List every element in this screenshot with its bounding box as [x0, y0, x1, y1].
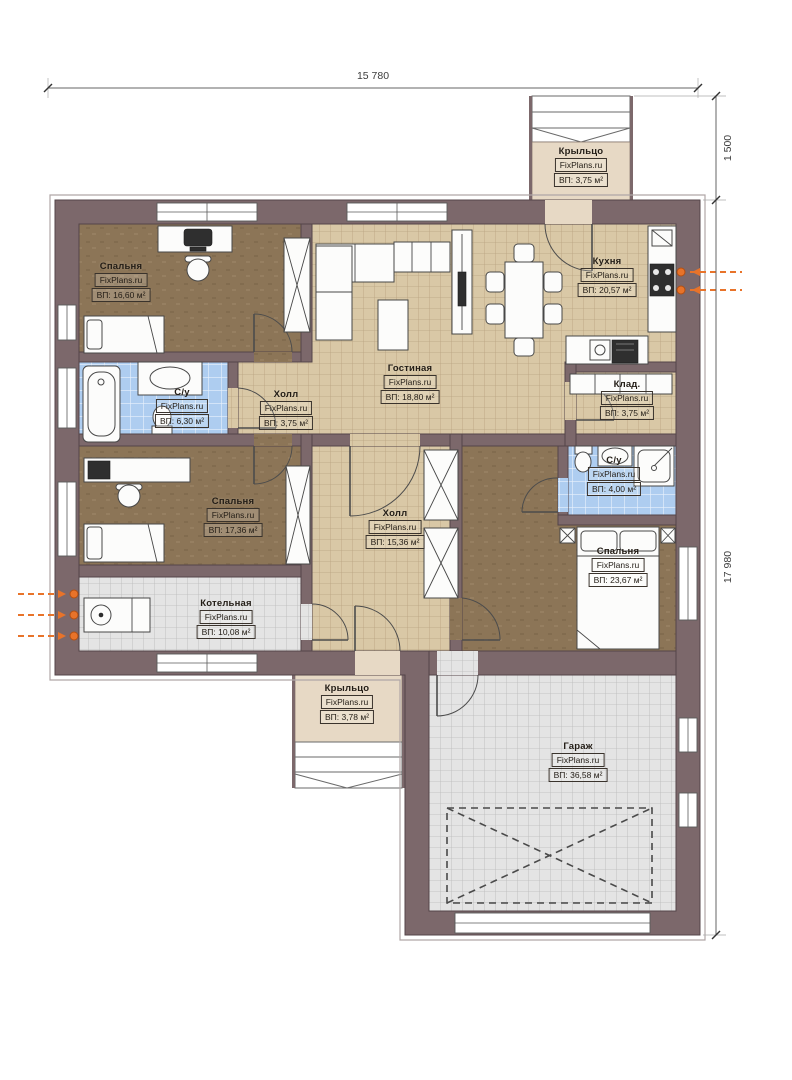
kitchen-counter: [648, 226, 676, 332]
room-name: Кухня: [593, 256, 622, 267]
window: [679, 718, 697, 752]
room-name: С/у: [174, 387, 189, 398]
room-area: ВП: 23,67 м²: [589, 573, 648, 587]
room-name: Гостиная: [388, 363, 433, 374]
room-name: Гараж: [563, 741, 592, 752]
room-area: ВП: 20,57 м²: [578, 283, 637, 297]
window: [58, 482, 76, 556]
wardrobe: [284, 238, 310, 332]
window: [347, 203, 447, 221]
room-label-porch-top: Крыльцо FixPlans.ru ВП: 3,75 м²: [554, 146, 608, 187]
room-area: ВП: 6,30 м²: [155, 414, 209, 428]
room-name: Клад.: [614, 379, 641, 390]
room-watermark: FixPlans.ru: [592, 558, 645, 572]
window: [157, 654, 257, 672]
room-label-living-room: Гостиная FixPlans.ru ВП: 18,80 м²: [381, 363, 440, 404]
room-area: ВП: 10,08 м²: [197, 625, 256, 639]
room-label-hall-2: Холл FixPlans.ru ВП: 15,36 м²: [366, 508, 425, 549]
garage-gate: [455, 913, 650, 933]
room-watermark: FixPlans.ru: [207, 508, 260, 522]
sideboard: [394, 242, 450, 272]
room-area: ВП: 3,75 м²: [259, 416, 313, 430]
desk: [158, 226, 232, 252]
room-name: Крыльцо: [325, 683, 370, 694]
room-area: ВП: 16,60 м²: [92, 288, 151, 302]
window: [58, 305, 76, 340]
window: [157, 203, 257, 221]
room-watermark: FixPlans.ru: [384, 375, 437, 389]
window: [679, 547, 697, 620]
room-watermark: FixPlans.ru: [581, 268, 634, 282]
floor-plan: 15 780 1 500 17 980 Крыльцо FixPlans.ru …: [0, 0, 792, 1080]
room-area: ВП: 3,78 м²: [320, 710, 374, 724]
room-watermark: FixPlans.ru: [95, 273, 148, 287]
room-watermark: FixPlans.ru: [555, 158, 608, 172]
bathtub: [83, 366, 120, 442]
wardrobe: [424, 450, 458, 520]
room-label-hall-1: Холл FixPlans.ru ВП: 3,75 м²: [259, 389, 313, 430]
room-area: ВП: 3,75 м²: [554, 173, 608, 187]
room-area: ВП: 3,75 м²: [600, 406, 654, 420]
room-label-kitchen: Кухня FixPlans.ru ВП: 20,57 м²: [578, 256, 637, 297]
desk: [84, 458, 190, 482]
room-label-boiler-room: Котельная FixPlans.ru ВП: 10,08 м²: [197, 598, 256, 639]
room-label-bedroom-3: Спальня FixPlans.ru ВП: 23,67 м²: [589, 546, 648, 587]
room-watermark: FixPlans.ru: [552, 753, 605, 767]
coffee-table: [378, 300, 408, 350]
room-name: Крыльцо: [559, 146, 604, 157]
room-name: Спальня: [597, 546, 639, 557]
room-watermark: FixPlans.ru: [321, 695, 374, 709]
room-area: ВП: 36,58 м²: [549, 768, 608, 782]
boiler: [84, 598, 150, 632]
room-name: Котельная: [200, 598, 252, 609]
room-label-bedroom-1: Спальня FixPlans.ru ВП: 16,60 м²: [92, 261, 151, 302]
room-area: ВП: 18,80 м²: [381, 390, 440, 404]
dimension-porch-right: 1 500: [722, 135, 734, 161]
window: [58, 368, 76, 428]
window: [679, 793, 697, 827]
kitchen-counter-2: [566, 336, 648, 364]
tv-stand: [452, 230, 472, 334]
nightstand: [661, 528, 675, 543]
room-name: Спальня: [212, 496, 254, 507]
wardrobe: [424, 528, 458, 598]
room-watermark: FixPlans.ru: [588, 467, 641, 481]
room-watermark: FixPlans.ru: [260, 401, 313, 415]
room-label-bathroom-2: С/у FixPlans.ru ВП: 4,00 м²: [587, 455, 641, 496]
room-label-porch-bottom: Крыльцо FixPlans.ru ВП: 3,78 м²: [320, 683, 374, 724]
room-watermark: FixPlans.ru: [200, 610, 253, 624]
wardrobe: [286, 466, 310, 564]
room-name: Холл: [274, 389, 299, 400]
room-watermark: FixPlans.ru: [369, 520, 422, 534]
room-label-bathroom-1: С/у FixPlans.ru ВП: 6,30 м²: [155, 387, 209, 428]
room-watermark: FixPlans.ru: [601, 391, 654, 405]
room-area: ВП: 17,36 м²: [204, 523, 263, 537]
room-name: Холл: [383, 508, 408, 519]
bed: [84, 524, 164, 562]
room-area: ВП: 4,00 м²: [587, 482, 641, 496]
room-label-bedroom-2: Спальня FixPlans.ru ВП: 17,36 м²: [204, 496, 263, 537]
bed: [84, 316, 164, 353]
nightstand: [560, 528, 575, 543]
room-name: Спальня: [100, 261, 142, 272]
dimension-right: 17 980: [722, 551, 734, 583]
room-label-garage: Гараж FixPlans.ru ВП: 36,58 м²: [549, 741, 608, 782]
room-watermark: FixPlans.ru: [156, 399, 209, 413]
room-label-storage: Клад. FixPlans.ru ВП: 3,75 м²: [600, 379, 654, 420]
dimension-top: 15 780: [357, 70, 389, 82]
room-name: С/у: [606, 455, 621, 466]
room-area: ВП: 15,36 м²: [366, 535, 425, 549]
